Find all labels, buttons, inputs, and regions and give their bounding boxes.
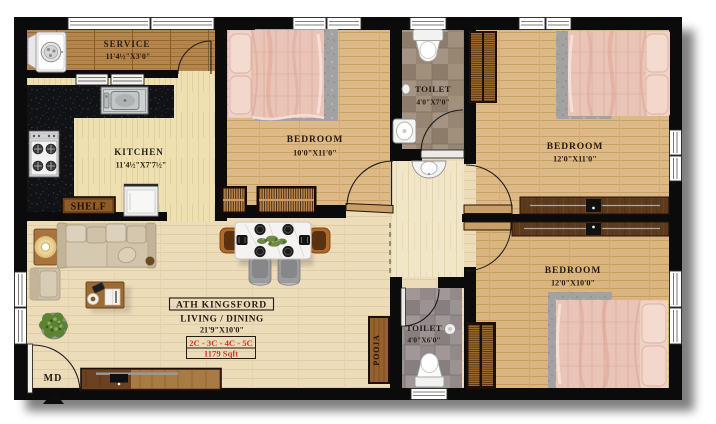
svg-text:LIVING / DINING: LIVING / DINING <box>180 315 263 325</box>
svg-text:21'9"X10'0": 21'9"X10'0" <box>200 325 244 334</box>
svg-text:SHELF: SHELF <box>71 202 107 213</box>
svg-text:12'0"X10'0": 12'0"X10'0" <box>551 279 595 288</box>
svg-text:MD: MD <box>44 373 63 384</box>
svg-text:BEDROOM: BEDROOM <box>547 142 603 152</box>
svg-text:KITCHEN: KITCHEN <box>114 147 164 157</box>
svg-text:2C - 3C - 4C - 5C: 2C - 3C - 4C - 5C <box>189 338 253 348</box>
svg-text:4'0"X7'0": 4'0"X7'0" <box>416 98 449 107</box>
svg-text:TOILET: TOILET <box>415 84 451 94</box>
svg-text:10'0"X11'0": 10'0"X11'0" <box>293 149 337 158</box>
svg-text:11'4½"X7'7½": 11'4½"X7'7½" <box>116 161 167 170</box>
svg-text:ATH KINGSFORD: ATH KINGSFORD <box>176 299 267 310</box>
svg-text:BEDROOM: BEDROOM <box>545 266 601 276</box>
svg-text:4'0"X6'0": 4'0"X6'0" <box>407 336 440 345</box>
svg-text:11'4½"X3'0": 11'4½"X3'0" <box>106 52 151 61</box>
svg-text:12'0"X11'0": 12'0"X11'0" <box>553 155 597 164</box>
svg-text:1179 Sqft: 1179 Sqft <box>204 348 238 358</box>
svg-text:BEDROOM: BEDROOM <box>287 135 343 145</box>
svg-text:POOJA: POOJA <box>372 334 381 365</box>
svg-text:SERVICE: SERVICE <box>104 39 151 49</box>
